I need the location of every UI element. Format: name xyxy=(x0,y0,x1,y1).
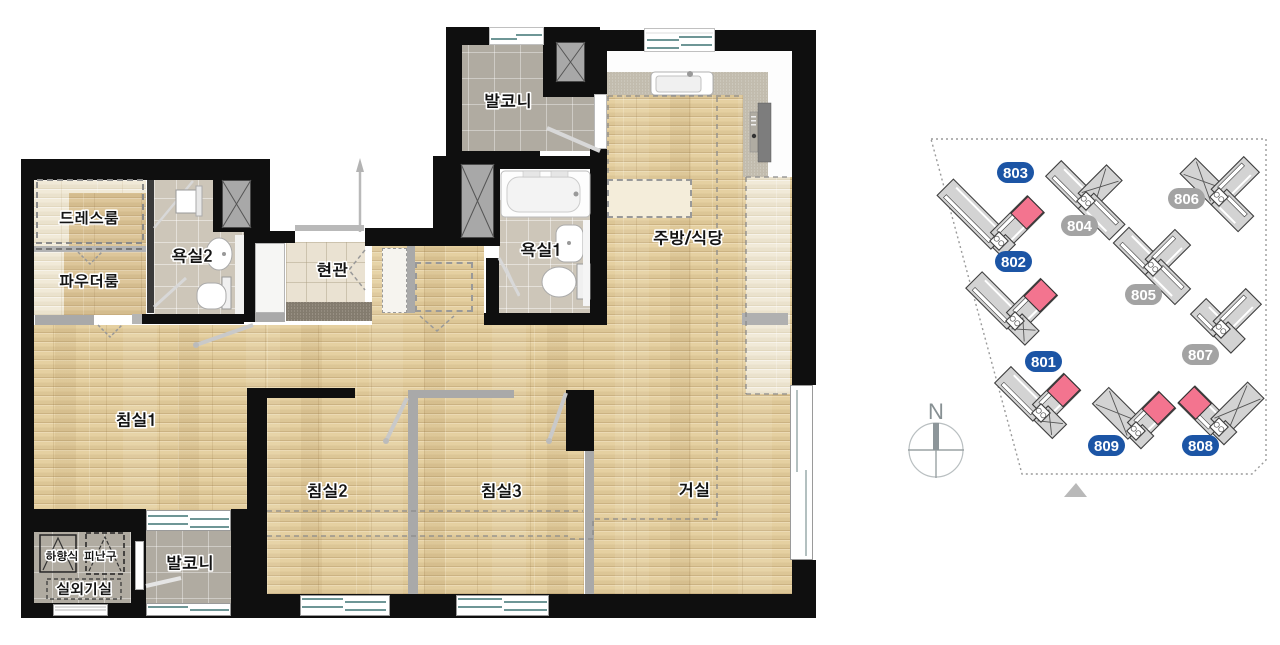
svg-text:807: 807 xyxy=(1188,347,1213,364)
svg-text:803: 803 xyxy=(1003,165,1028,182)
svg-text:N: N xyxy=(928,399,944,424)
svg-text:804: 804 xyxy=(1067,218,1093,235)
svg-text:805: 805 xyxy=(1131,287,1156,304)
svg-text:802: 802 xyxy=(1001,254,1026,271)
svg-text:801: 801 xyxy=(1031,354,1056,371)
svg-text:808: 808 xyxy=(1188,438,1213,455)
svg-text:806: 806 xyxy=(1174,191,1199,208)
svg-text:809: 809 xyxy=(1094,438,1119,455)
